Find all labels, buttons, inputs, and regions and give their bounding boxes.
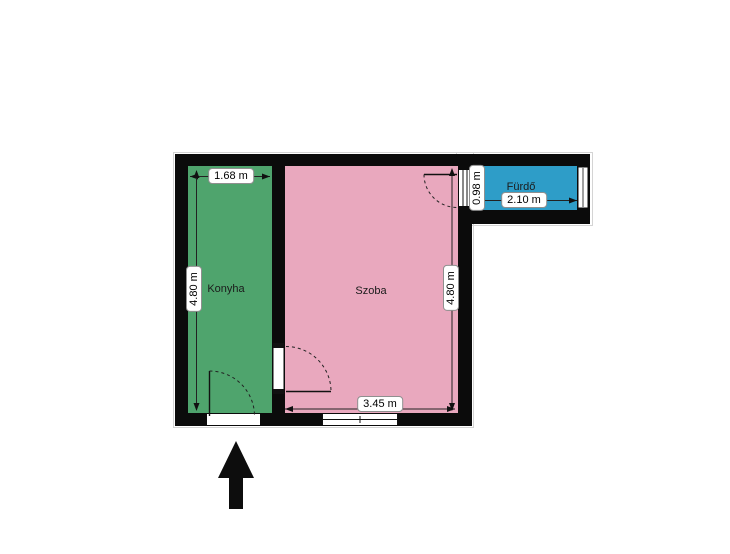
floor-plan: Konyha Szoba Fürdő 1.68 m 4.80 m 3.45 m … xyxy=(0,0,730,554)
dimension-bathroom-height: 0.98 m xyxy=(469,165,485,211)
room-label-living: Szoba xyxy=(355,285,386,297)
dimension-living-height: 4.80 m xyxy=(443,265,459,311)
room-label-kitchen: Konyha xyxy=(207,283,244,295)
dimension-kitchen-height: 4.80 m xyxy=(186,266,202,312)
wall-bottom xyxy=(175,413,472,426)
wall-bathroom-bottom xyxy=(458,210,590,224)
wall-top xyxy=(175,154,590,166)
wall-bathroom-right xyxy=(577,154,590,224)
dimension-kitchen-width: 1.68 m xyxy=(208,168,254,184)
dimension-living-width: 3.45 m xyxy=(357,396,403,412)
dimension-bathroom-width: 2.10 m xyxy=(501,192,547,208)
wall-kitchen-living-divider xyxy=(272,154,285,426)
entrance-arrow-icon xyxy=(218,441,254,509)
